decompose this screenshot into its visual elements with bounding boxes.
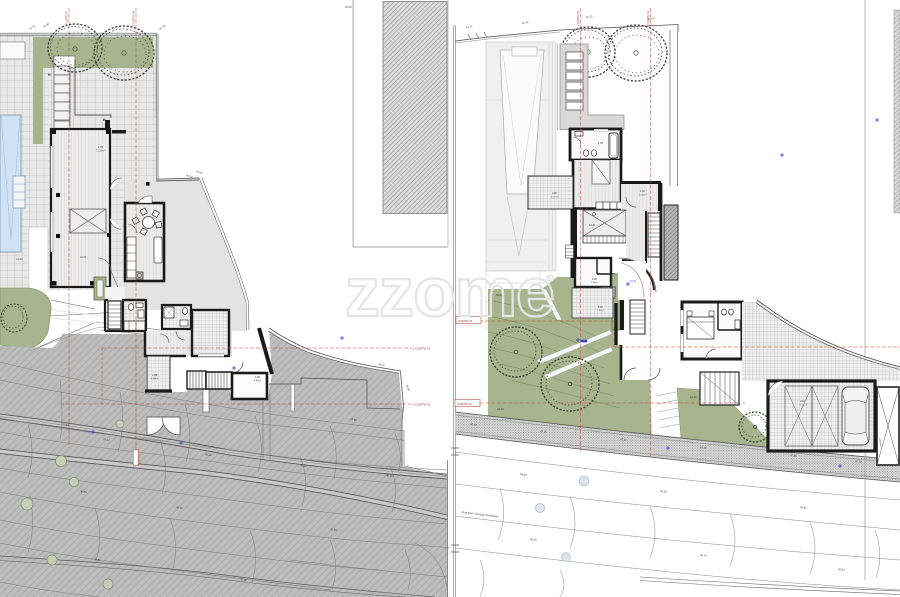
svg-text:6.84m²: 6.84m²: [151, 378, 159, 381]
svg-text:2.03: 2.03: [598, 142, 603, 145]
svg-text:41.80: 41.80: [690, 395, 697, 399]
svg-text:44.10: 44.10: [630, 280, 637, 283]
svg-text:2 CORTE 04: 2 CORTE 04: [132, 11, 136, 26]
svg-text:CORTE 02: CORTE 02: [457, 402, 472, 406]
svg-text:2 CORTE 04: 2 CORTE 04: [646, 11, 650, 26]
svg-text:2.02: 2.02: [640, 190, 645, 193]
svg-text:2.10: 2.10: [800, 400, 805, 403]
svg-text:1.05: 1.05: [98, 145, 104, 149]
svg-text:1.38: 1.38: [255, 376, 260, 379]
svg-text:1.98m²: 1.98m²: [591, 281, 598, 284]
svg-text:42.20: 42.20: [497, 407, 504, 411]
svg-text:44.70: 44.70: [700, 553, 707, 558]
svg-text:10.05m²: 10.05m²: [551, 195, 559, 198]
svg-text:7.05m²: 7.05m²: [597, 309, 604, 312]
svg-text:12.86m²: 12.86m²: [639, 193, 647, 196]
svg-text:6.84m²: 6.84m²: [254, 379, 261, 382]
svg-text:45.80: 45.80: [800, 505, 807, 510]
svg-text:36.40: 36.40: [345, 5, 352, 9]
svg-text:44.38: 44.38: [589, 224, 596, 227]
svg-text:44.30: 44.30: [838, 567, 845, 572]
svg-text:2 CORTE 04: 2 CORTE 04: [136, 452, 138, 466]
svg-text:2 CORTE 01: 2 CORTE 01: [413, 347, 430, 351]
svg-text:4.08: 4.08: [152, 373, 158, 377]
svg-text:R: R: [548, 276, 552, 282]
svg-text:40.60: 40.60: [80, 256, 87, 259]
svg-text:71.33m²: 71.33m²: [96, 149, 105, 152]
svg-text:26.41m²: 26.41m²: [799, 403, 807, 406]
svg-text:2 CORTE 03: 2 CORTE 03: [576, 11, 580, 26]
svg-text:2 CORTE 03: 2 CORTE 03: [65, 11, 69, 26]
svg-text:2 CORTE 02: 2 CORTE 02: [413, 403, 430, 407]
svg-text:41.20: 41.20: [16, 257, 23, 261]
svg-text:2.08: 2.08: [552, 192, 557, 195]
svg-text:2.06: 2.06: [592, 278, 597, 281]
svg-text:43.10: 43.10: [581, 340, 588, 343]
svg-text:5.48: 5.48: [598, 306, 603, 309]
svg-text:zzome: zzome: [345, 253, 554, 331]
